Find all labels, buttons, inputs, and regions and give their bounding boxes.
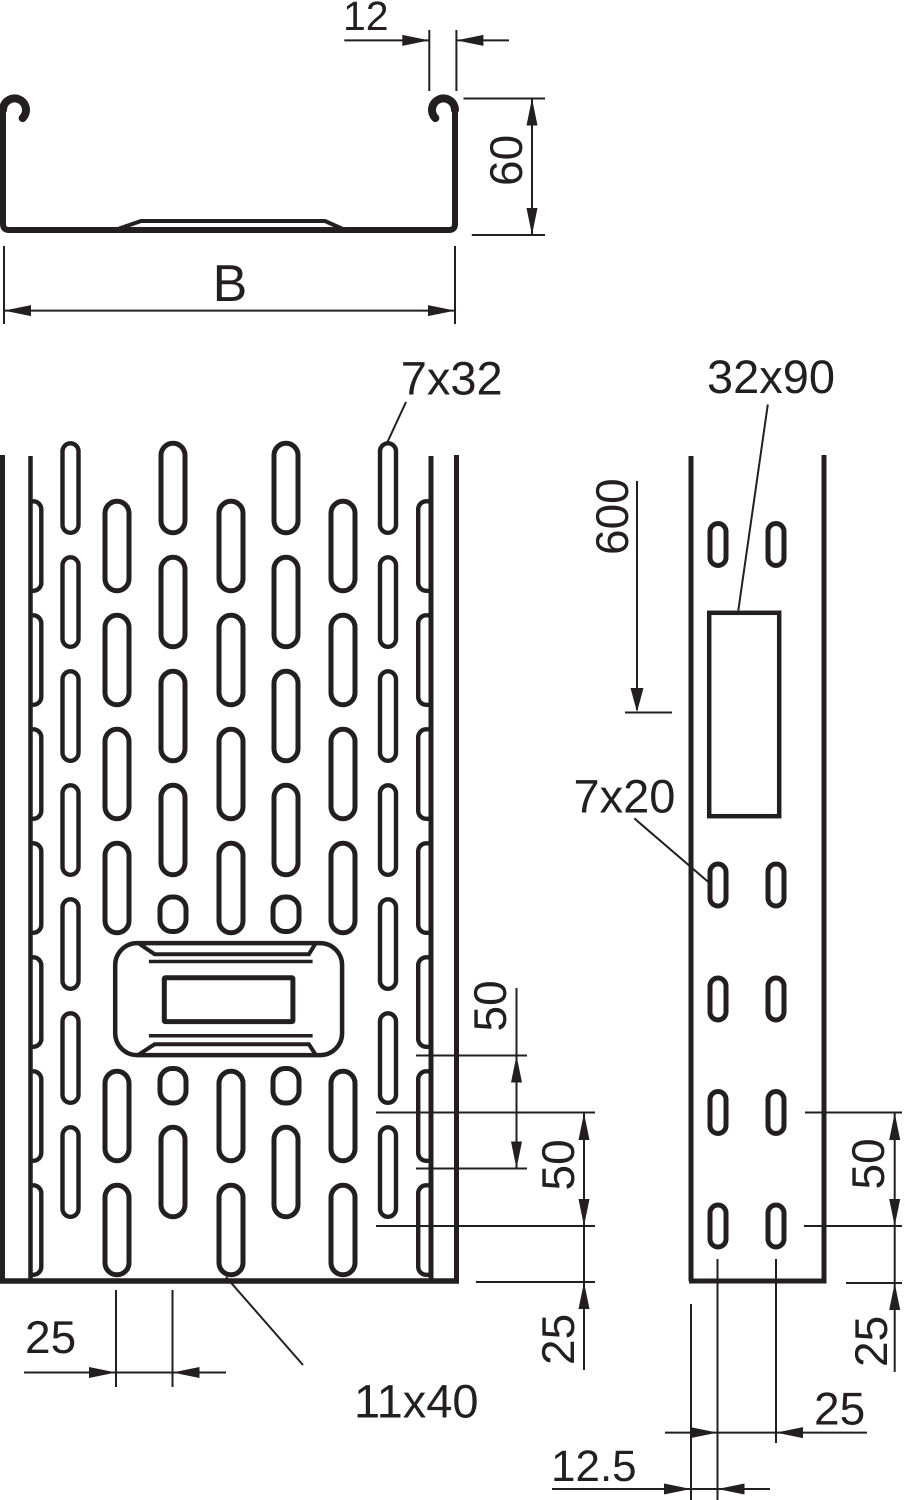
svg-text:25: 25 [814, 1383, 865, 1435]
svg-text:50: 50 [842, 1138, 894, 1189]
svg-text:25: 25 [532, 1314, 584, 1365]
svg-text:B: B [213, 255, 248, 313]
svg-text:600: 600 [586, 478, 638, 555]
svg-text:25: 25 [845, 1316, 897, 1367]
svg-text:12: 12 [343, 0, 389, 39]
svg-text:50: 50 [464, 980, 516, 1031]
svg-text:11x40: 11x40 [354, 1375, 479, 1428]
svg-text:7x32: 7x32 [401, 351, 503, 404]
svg-text:32x90: 32x90 [707, 350, 835, 403]
svg-text:7x20: 7x20 [574, 770, 676, 823]
svg-text:60: 60 [480, 135, 532, 186]
svg-text:12.5: 12.5 [551, 1442, 637, 1491]
svg-text:25: 25 [25, 1311, 76, 1363]
svg-text:50: 50 [532, 1139, 584, 1190]
